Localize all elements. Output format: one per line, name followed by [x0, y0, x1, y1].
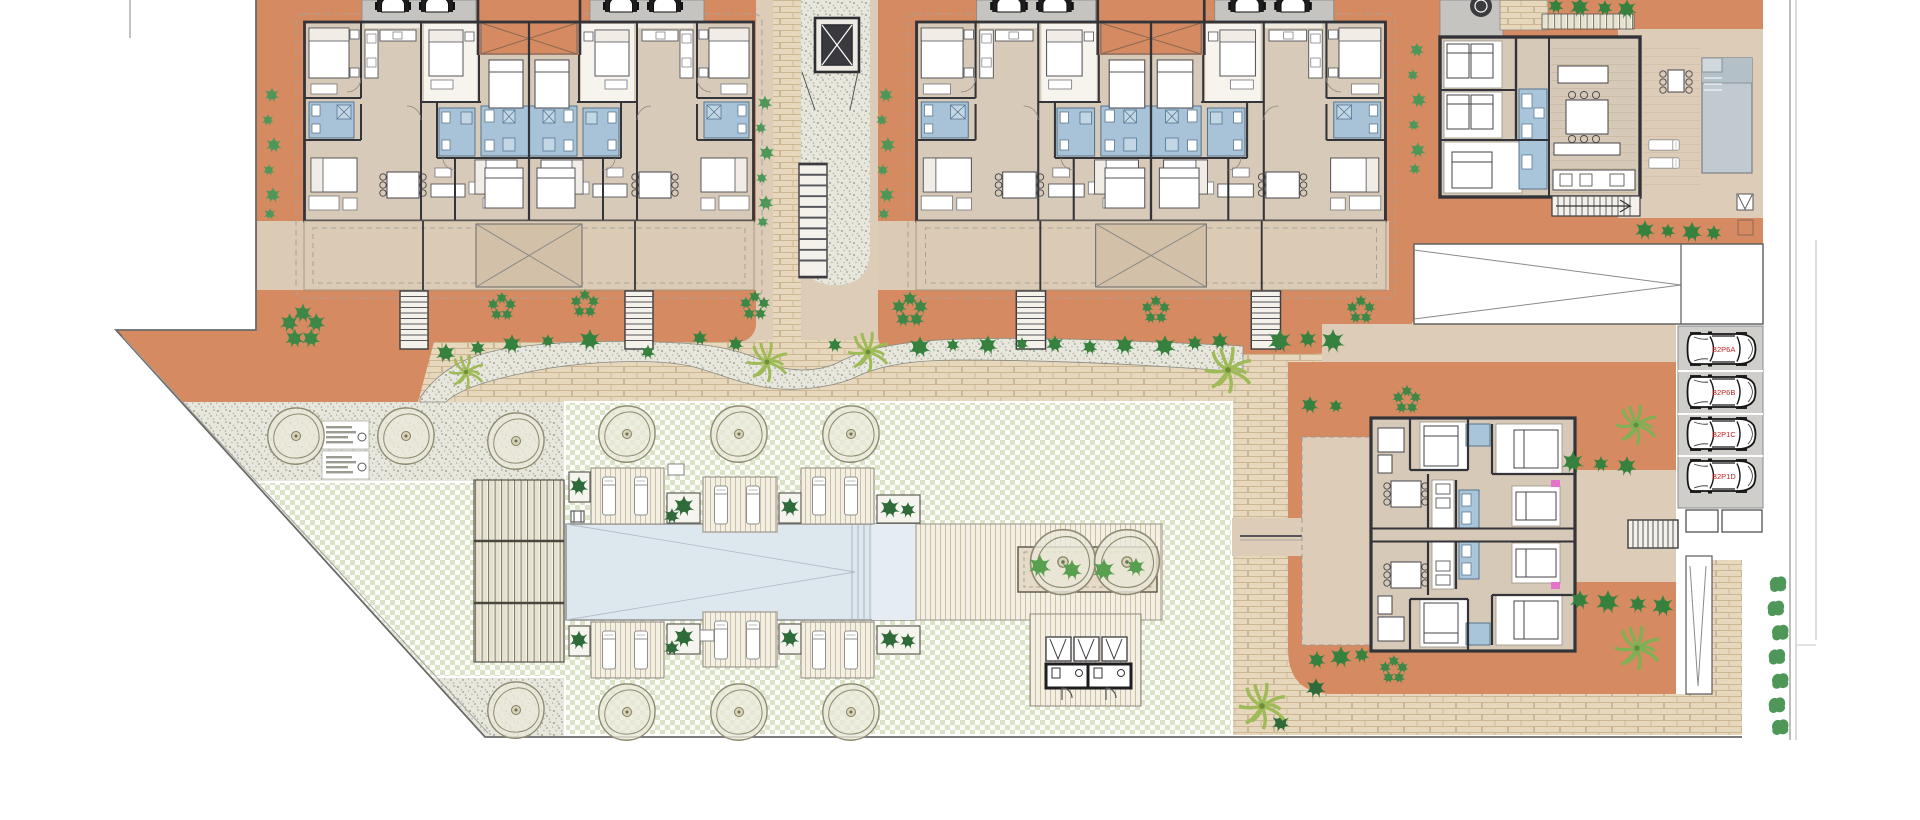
svg-text:B2P6B: B2P6B: [1712, 388, 1735, 397]
svg-text:B2P1C: B2P1C: [1712, 430, 1736, 439]
svg-text:B2P1D: B2P1D: [1712, 472, 1736, 481]
svg-text:B2P6A: B2P6A: [1712, 345, 1735, 354]
